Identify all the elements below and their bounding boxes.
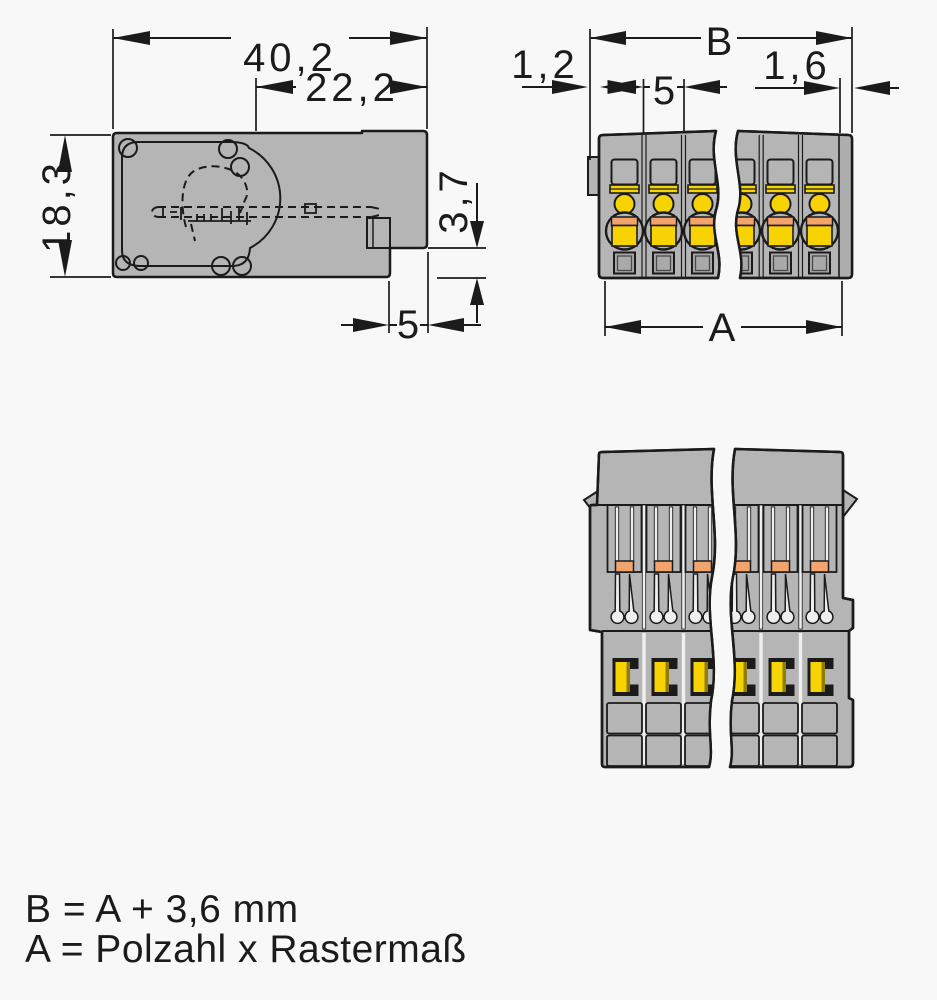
legend-formula-b: B = A + 3,6 mm — [25, 888, 299, 931]
side-view-foot-notch — [367, 218, 390, 248]
dimension-3-7: 3,7 — [428, 166, 486, 323]
dim-label-left-offset: 1,2 — [511, 43, 579, 87]
dimension-1-6: 1,6 — [755, 44, 899, 133]
dimension-5-pitch: 5 — [608, 69, 728, 133]
dim-label-overall-width: B — [706, 20, 733, 64]
front-view-drawing: B 1,2 5 1,6 A — [511, 20, 899, 350]
dim-label-right-offset: 1,6 — [763, 44, 831, 88]
dim-label-step-width: 5 — [397, 303, 419, 347]
legend: B = A + 3,6 mm A = Polzahl x Rastermaß — [25, 888, 467, 971]
latch-tab-right — [843, 490, 857, 517]
rear-view-drawing — [584, 449, 857, 767]
connector-technical-drawing: 40,2 22,2 18,3 3,7 5 — [0, 0, 937, 1000]
dim-label-pole-span: A — [709, 306, 736, 350]
dimension-18-3: 18,3 — [35, 135, 111, 277]
dim-label-height: 18,3 — [35, 159, 79, 253]
dim-label-step-height: 3,7 — [432, 166, 476, 234]
front-housing-right — [736, 131, 852, 278]
legend-formula-a: A = Polzahl x Rastermaß — [25, 928, 467, 971]
dimension-A: A — [605, 281, 842, 350]
dim-label-pitch: 5 — [653, 69, 675, 113]
side-view-housing — [113, 131, 427, 277]
dim-label-right-section: 22,2 — [305, 66, 399, 110]
side-view-drawing: 40,2 22,2 18,3 3,7 5 — [35, 27, 486, 347]
end-wall — [839, 135, 852, 278]
